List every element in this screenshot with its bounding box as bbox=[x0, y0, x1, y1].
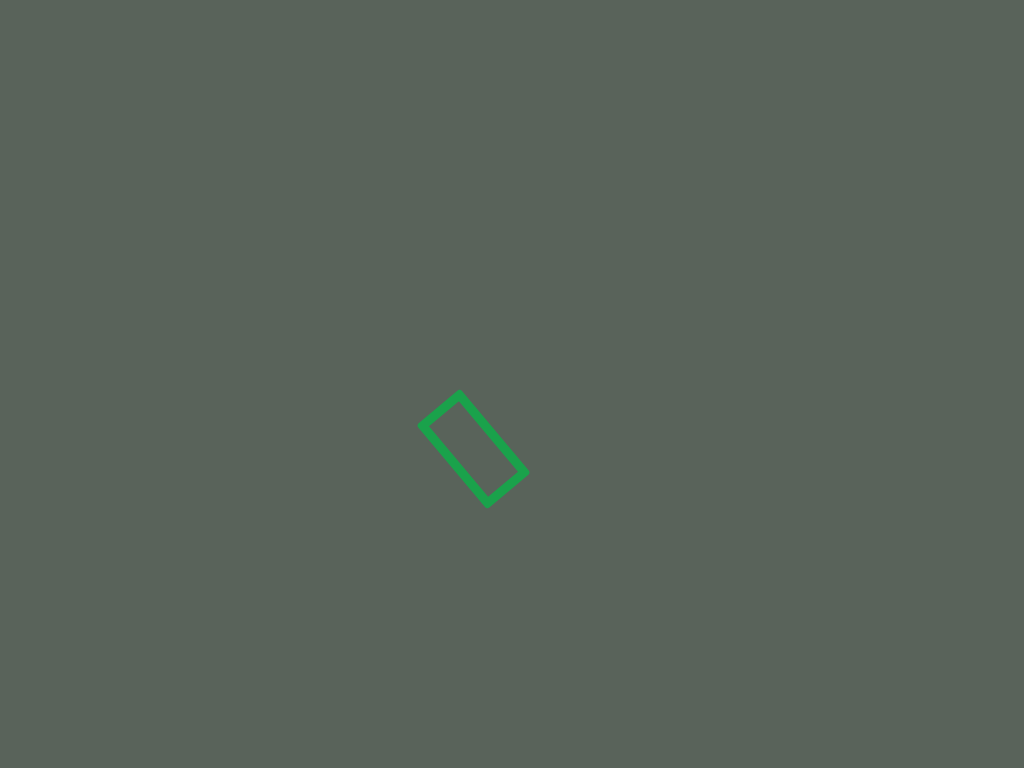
satellite-aerial-photo bbox=[0, 0, 1024, 768]
property-listing-map bbox=[0, 0, 1024, 768]
